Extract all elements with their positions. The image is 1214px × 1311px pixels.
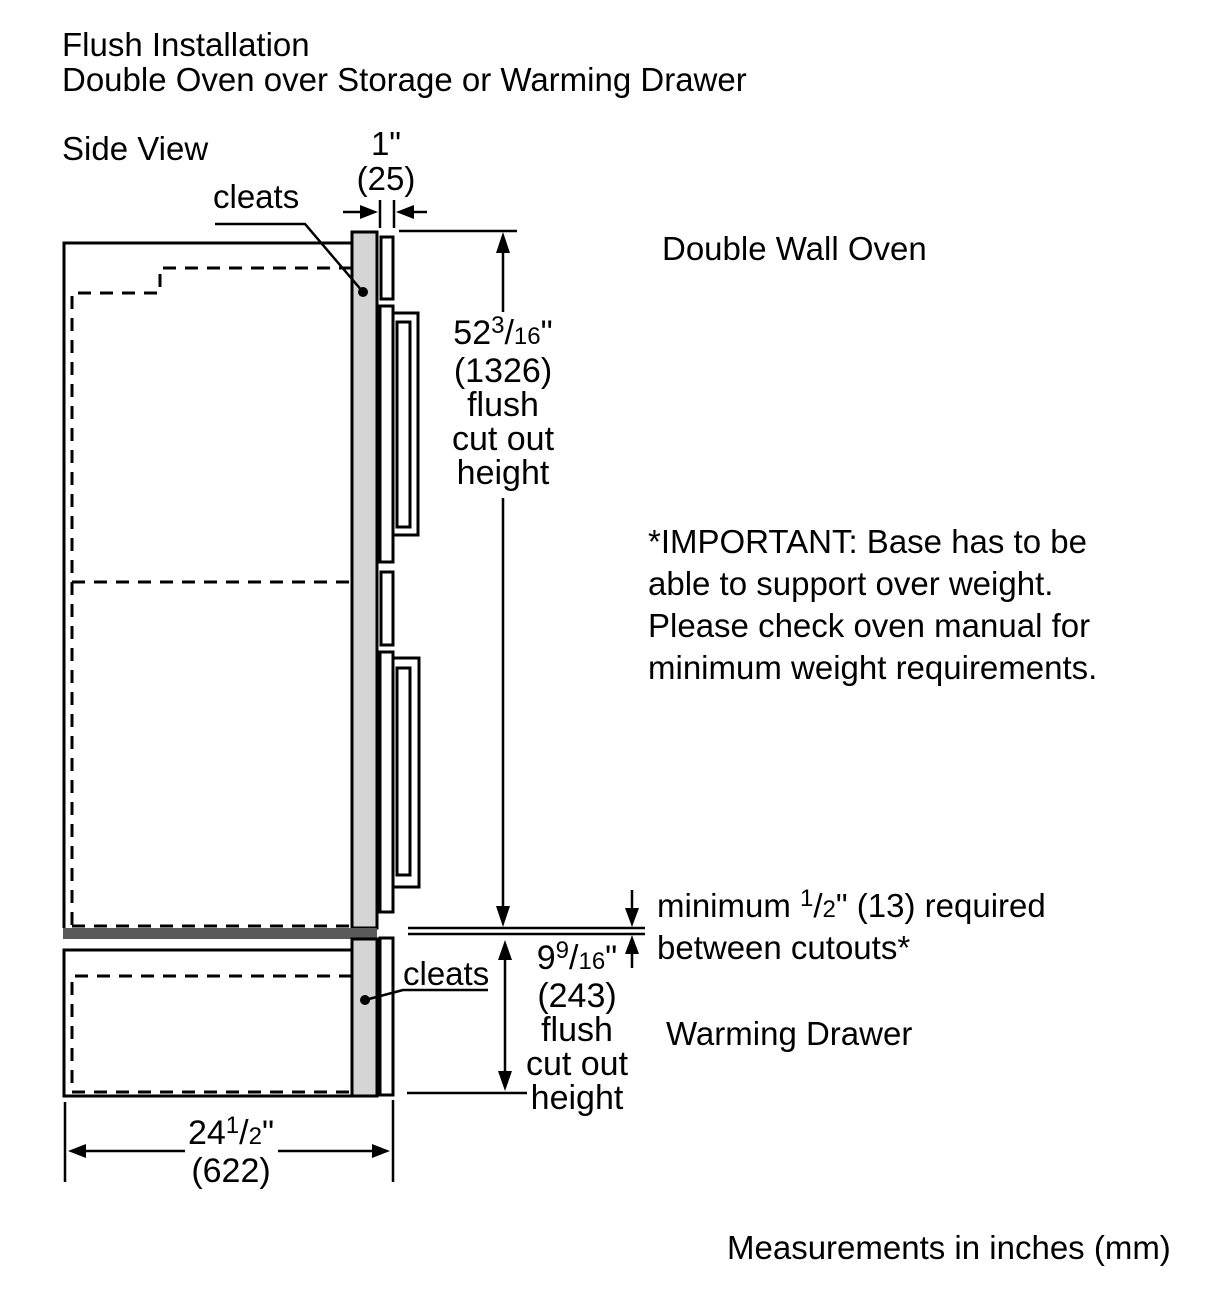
lower-oven-door-inner <box>397 668 410 875</box>
dim-drawer-cutout-label: 99/16" (243) flush cut out height <box>497 941 657 1115</box>
dim-oven-cutout-value: 523/16" <box>423 316 583 354</box>
title-line-2: Double Oven over Storage or Warming Draw… <box>62 62 747 97</box>
important-note: *IMPORTANT: Base has to be able to suppo… <box>648 521 1097 689</box>
double-wall-oven-label: Double Wall Oven <box>662 231 927 266</box>
cleats-top-label: cleats <box>213 179 299 214</box>
oven-top-trim <box>381 237 393 299</box>
cleats-bottom-label: cleats <box>403 956 489 991</box>
page-title: Flush Installation Double Oven over Stor… <box>62 27 747 97</box>
title-line-1: Flush Installation <box>62 27 747 62</box>
warming-drawer-label: Warming Drawer <box>666 1016 912 1051</box>
dim-drawer-cutout-value: 99/16" <box>497 941 657 979</box>
dim-depth-label: 241/2" (622) <box>151 1116 311 1189</box>
dim-top-gap-inches: 1" <box>336 126 436 161</box>
base-support-bar <box>63 928 377 939</box>
dim-oven-cutout-mm: (1326) <box>423 354 583 388</box>
cabinet-outline <box>64 243 352 928</box>
dim-depth-value: 241/2" <box>151 1116 311 1154</box>
min-gap-note-line2: between cutouts* <box>657 930 910 965</box>
dim-drawer-cutout-mm: (243) <box>497 979 657 1013</box>
cleats-top-leader <box>215 224 368 297</box>
footer-note: Measurements in inches (mm) <box>727 1230 1171 1265</box>
min-gap-note-line1: minimum 1/2" (13) required <box>657 888 1046 927</box>
lower-oven-flange <box>380 652 393 912</box>
cleat-strip-lower <box>352 939 377 1096</box>
warming-drawer-outline <box>64 950 377 1096</box>
dim-top-gap-label: 1" (25) <box>336 126 436 196</box>
dim-top-gap-lines <box>343 200 427 228</box>
oven-mid-trim <box>381 572 393 645</box>
installation-diagram: Flush Installation Double Oven over Stor… <box>0 0 1214 1311</box>
dim-top-gap-mm: (25) <box>336 161 436 196</box>
dim-depth-mm: (622) <box>151 1154 311 1189</box>
cleat-strip-upper <box>352 232 377 928</box>
dim-oven-cutout-label: 523/16" (1326) flush cut out height <box>423 316 583 490</box>
oven-front-profile <box>380 237 419 912</box>
view-label: Side View <box>62 131 208 166</box>
upper-oven-door-inner <box>397 322 410 527</box>
drawer-front-flange <box>380 938 393 1095</box>
upper-oven-flange <box>380 306 393 562</box>
oven-cutout-dashed-outline <box>72 268 352 926</box>
